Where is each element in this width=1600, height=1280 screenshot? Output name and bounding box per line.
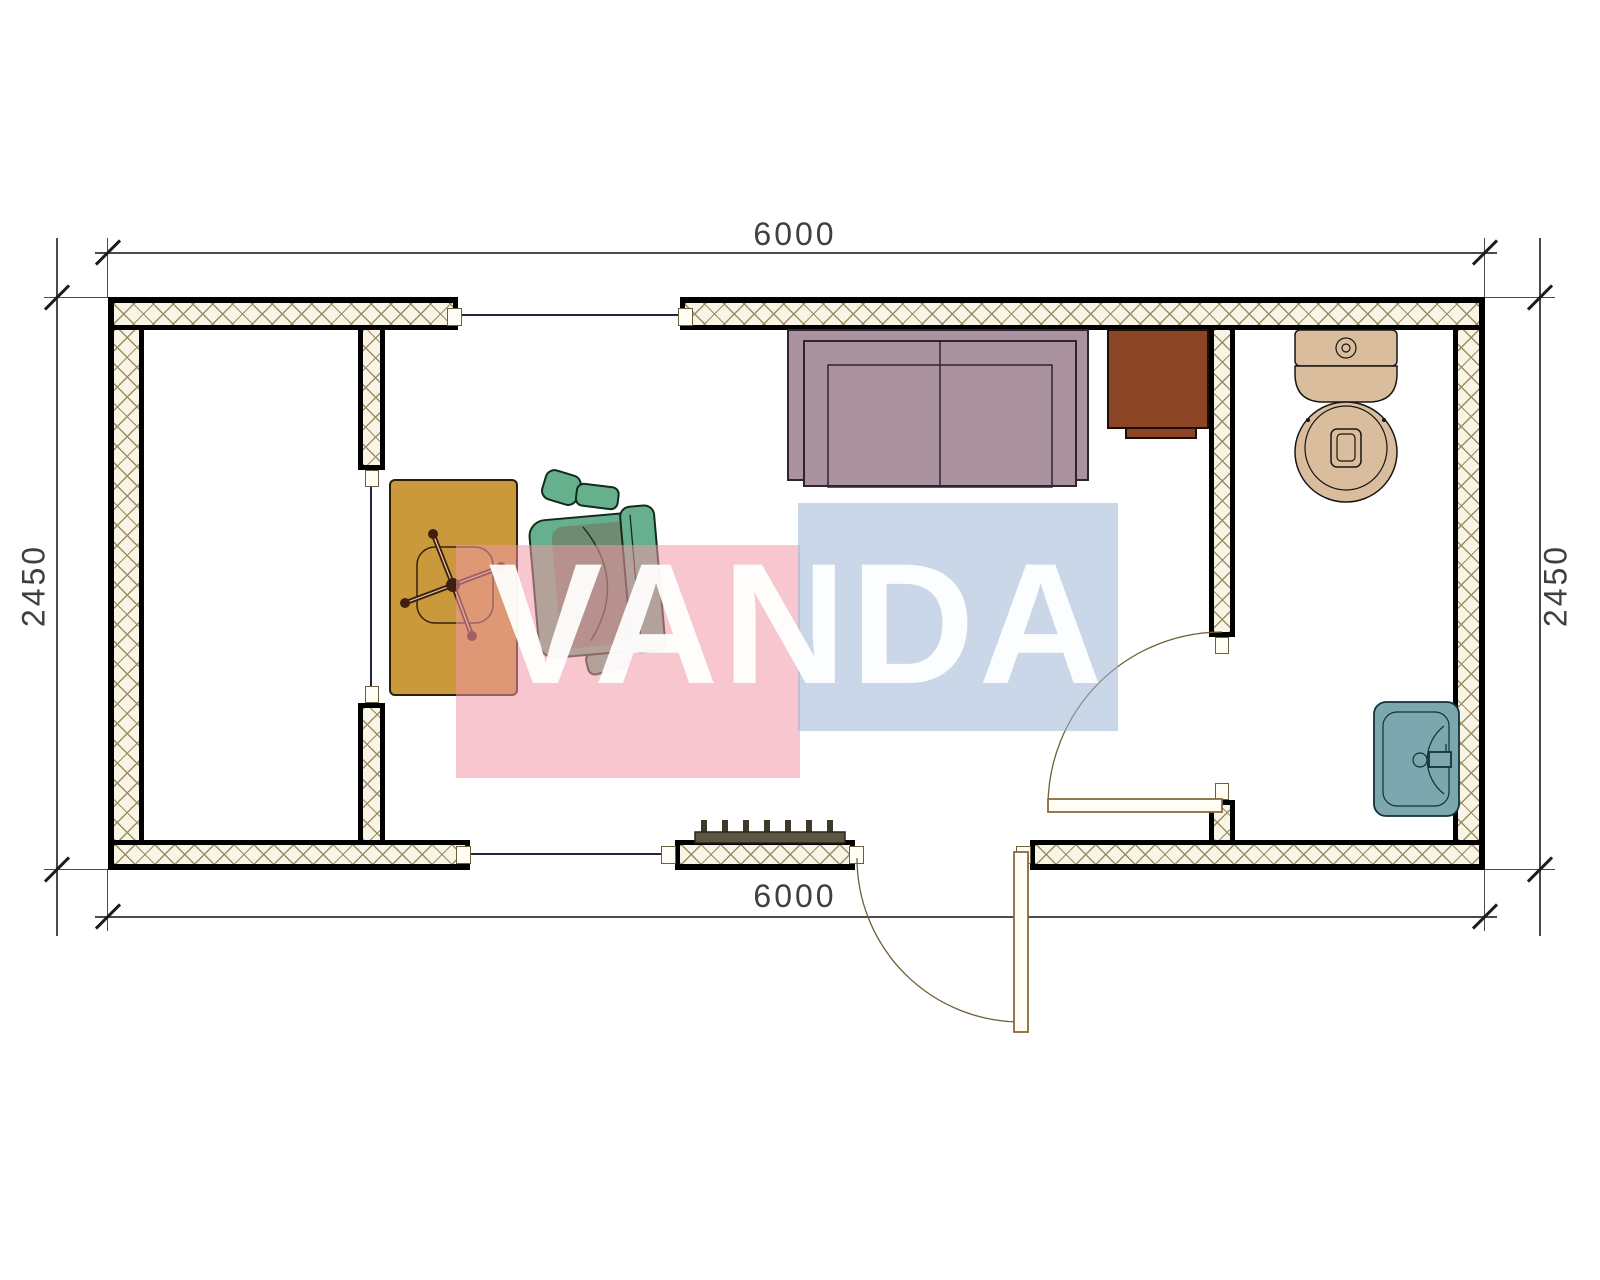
sofa bbox=[788, 330, 1088, 487]
floor-plan-canvas: 6000 6000 2450 2450 bbox=[0, 0, 1600, 1280]
sink bbox=[1374, 702, 1459, 816]
radiator bbox=[695, 820, 845, 843]
entry-door bbox=[857, 852, 1028, 1032]
watermark-text: VANDA bbox=[488, 538, 1107, 710]
toilet bbox=[1295, 330, 1397, 502]
cabinet bbox=[1108, 330, 1208, 438]
